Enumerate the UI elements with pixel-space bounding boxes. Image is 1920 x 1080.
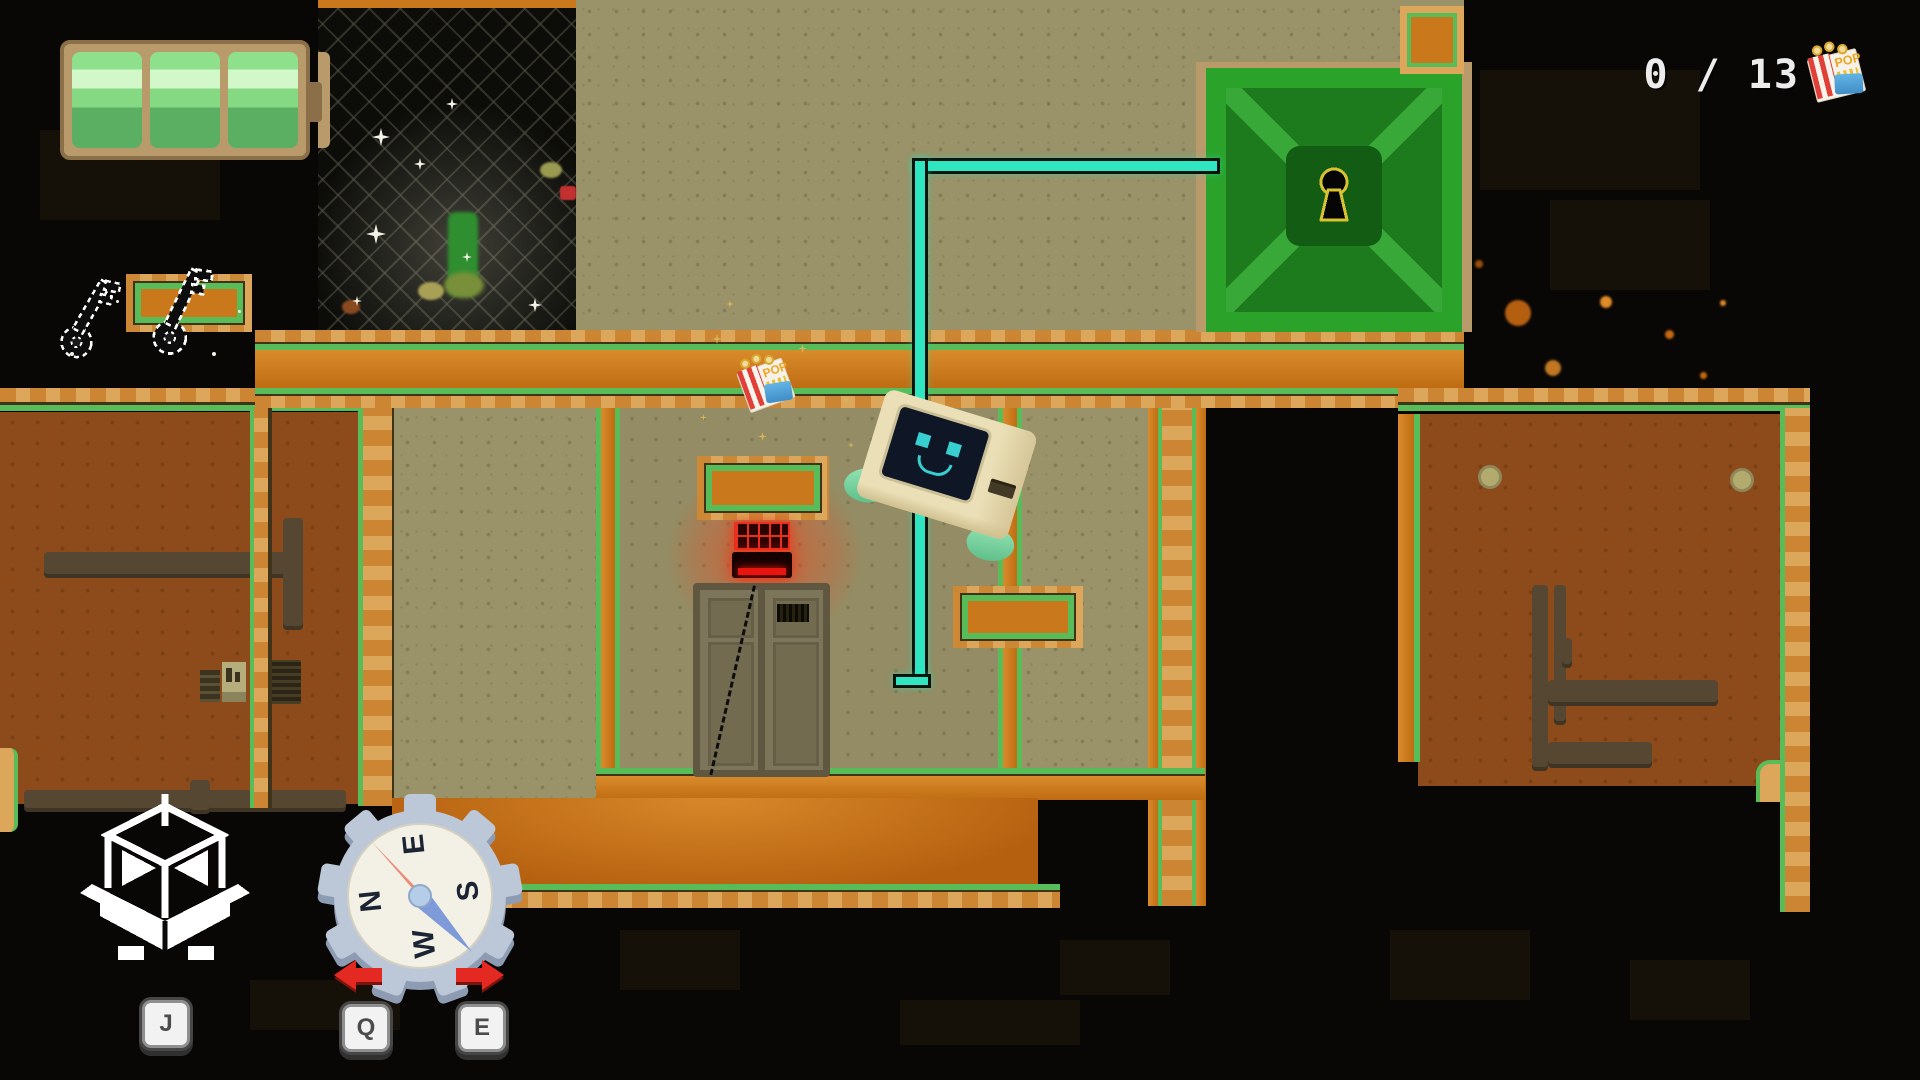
- floppy-label-item: [200, 662, 246, 702]
- right-room-left-column: [1398, 414, 1420, 762]
- popcorn-icon: POP: [1800, 36, 1875, 106]
- key-label: Q: [357, 1014, 376, 1042]
- right-room: [1418, 414, 1780, 786]
- inner-floor-beam: [596, 768, 1205, 800]
- dust-particle: [70, 352, 74, 356]
- key-icon: [141, 251, 241, 370]
- debris-blob: [560, 186, 576, 200]
- ember-particle: [1545, 360, 1561, 376]
- key-label: E: [474, 1014, 490, 1042]
- arrow-right-icon: [456, 960, 504, 990]
- background-blotch: [1630, 960, 1750, 1020]
- key-icon: [48, 261, 147, 375]
- rivet: [1478, 465, 1502, 489]
- left-room-right-column: [358, 408, 394, 806]
- background-blotch: [1390, 930, 1530, 1000]
- battery-cell: [228, 52, 298, 148]
- place-block-key[interactable]: J: [142, 1000, 190, 1048]
- key-label: J: [159, 1010, 172, 1038]
- background-blotch: [620, 930, 740, 990]
- robot-smile: [914, 455, 953, 480]
- popcorn-counter: 0 / 13: [1620, 52, 1800, 98]
- ember-particle: [1665, 330, 1674, 339]
- battery-icon: [60, 40, 310, 160]
- orange-box: [1400, 6, 1464, 74]
- platform: [697, 456, 829, 520]
- ember-particle: [1475, 260, 1483, 268]
- rotate-left-key[interactable]: Q: [342, 1004, 390, 1052]
- left-room: [0, 412, 360, 804]
- platform: [953, 586, 1083, 648]
- place-block-icon: [70, 788, 260, 978]
- door-vent: [777, 604, 809, 622]
- locked-hatch[interactable]: [1206, 68, 1462, 332]
- ember-particle: [1600, 296, 1612, 308]
- right-room-pipe: [1562, 638, 1572, 668]
- rope-tip: [893, 674, 931, 688]
- arrow-left-icon: [334, 960, 382, 990]
- battery-knob: [306, 82, 322, 122]
- keyhole-icon: [1312, 162, 1356, 230]
- ember-particle: [1720, 300, 1726, 306]
- debris-blob: [540, 162, 562, 178]
- left-edge-trim: [0, 748, 18, 832]
- debris-blob: [444, 272, 484, 298]
- center-right-column: [1148, 332, 1206, 906]
- robot-screen: [877, 402, 994, 505]
- robot-eye: [915, 432, 931, 448]
- left-room-pipe: [283, 518, 303, 630]
- battery-cell: [150, 52, 220, 148]
- hatch-frame: [1196, 62, 1472, 332]
- inner-left-column: [596, 408, 620, 772]
- right-room-pipe: [1548, 680, 1718, 706]
- background-blotch: [900, 1000, 1080, 1045]
- right-room-notch: [1756, 760, 1780, 802]
- game-screen[interactable]: POP: [0, 0, 1920, 1080]
- dust-particle: [238, 310, 241, 313]
- dust-particle: [212, 352, 216, 356]
- main-beam: [255, 330, 1464, 408]
- rotate-right-key[interactable]: E: [458, 1004, 506, 1052]
- turret-grid: [734, 522, 790, 550]
- right-room-pipe: [1532, 585, 1548, 771]
- thin-column: [250, 408, 272, 808]
- door-panel: [765, 590, 823, 770]
- ember-particle: [1505, 300, 1531, 326]
- right-room-top-frame: [1398, 388, 1810, 414]
- background-blotch: [1550, 200, 1710, 290]
- battery-cell: [72, 52, 142, 148]
- rivet: [1730, 468, 1754, 492]
- right-room-pipe: [1548, 742, 1652, 768]
- ember-particle: [1700, 372, 1707, 379]
- background-blotch: [1060, 940, 1170, 995]
- rope-horizontal: [912, 158, 1220, 174]
- debris-blob: [418, 282, 444, 300]
- door[interactable]: [693, 583, 830, 777]
- turret-mouth: [732, 552, 792, 578]
- robot-eye: [946, 441, 962, 457]
- door-panel: [700, 590, 758, 770]
- right-room-right-column: [1780, 408, 1810, 912]
- dust-particle: [116, 300, 119, 303]
